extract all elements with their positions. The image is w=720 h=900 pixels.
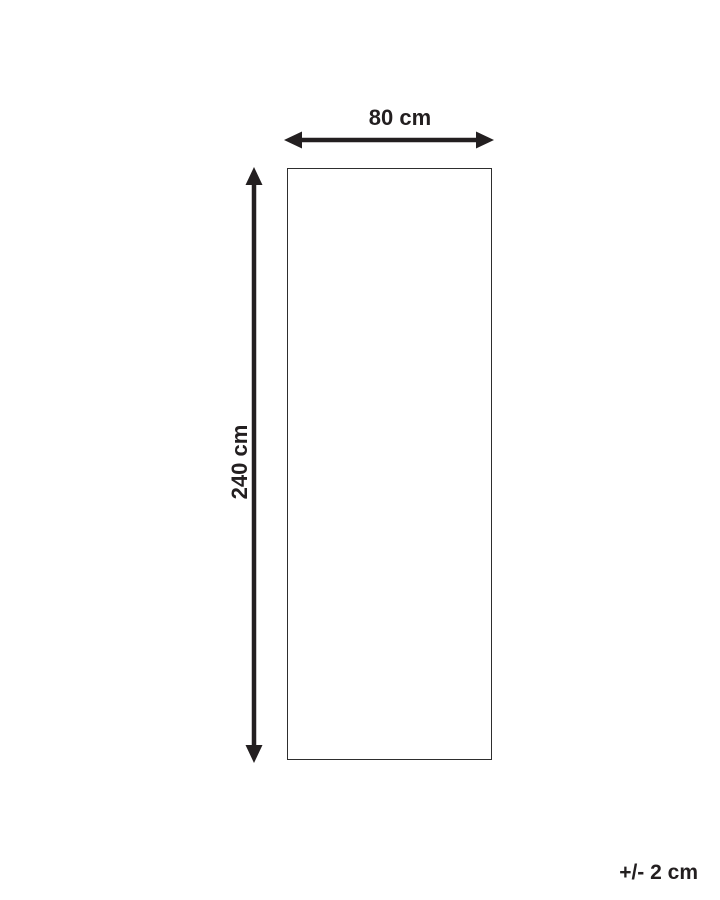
width-dimension-label: 80 cm <box>300 107 500 129</box>
dimension-diagram: 80 cm 240 cm +/- 2 cm <box>0 0 720 900</box>
width-arrowhead-left-icon <box>284 132 302 149</box>
product-outline <box>287 168 492 760</box>
width-arrowhead-right-icon <box>476 132 494 149</box>
width-double-arrow-icon <box>284 131 494 149</box>
height-dimension-label: 240 cm <box>229 425 251 500</box>
tolerance-label: +/- 2 cm <box>619 862 698 883</box>
height-arrowhead-bottom-icon <box>246 745 263 763</box>
height-arrowhead-top-icon <box>246 167 263 185</box>
